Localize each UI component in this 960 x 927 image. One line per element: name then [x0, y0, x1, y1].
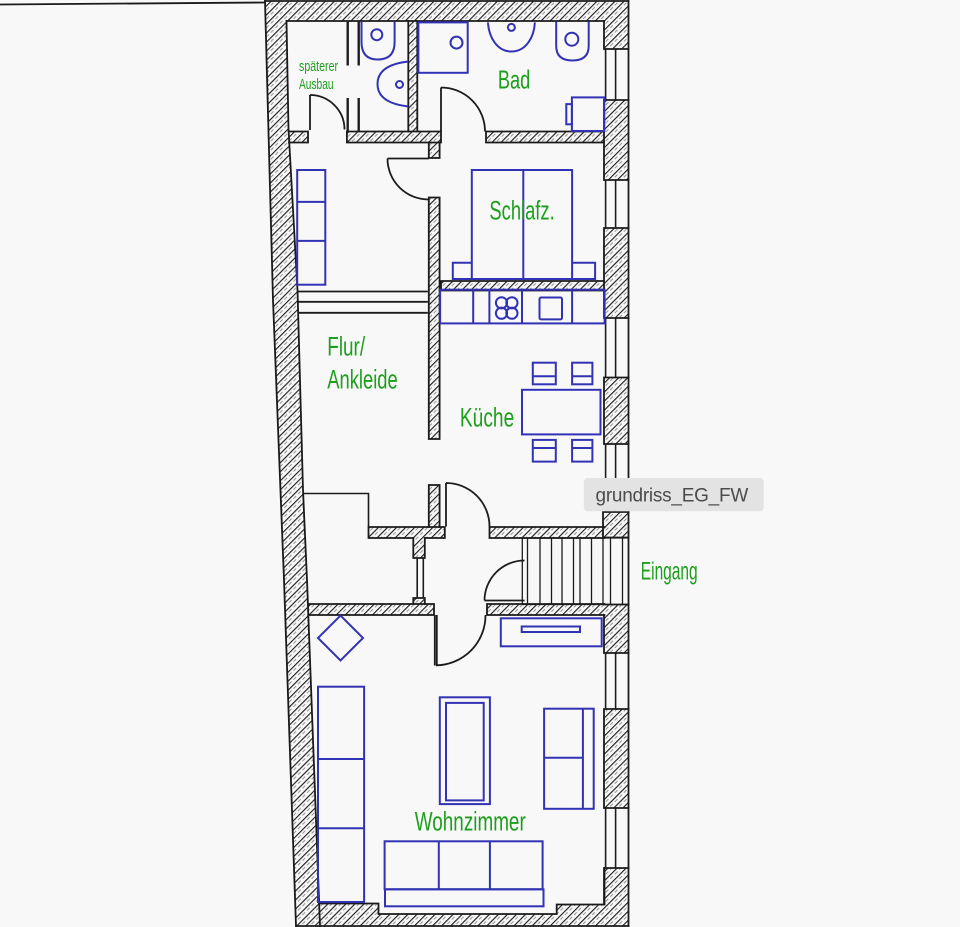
svg-text:Ankleide: Ankleide	[327, 364, 397, 394]
svg-text:Schlafz.: Schlafz.	[489, 195, 554, 225]
svg-text:Eingang: Eingang	[641, 558, 698, 586]
svg-text:Bad: Bad	[498, 65, 530, 94]
svg-text:späterer: späterer	[299, 57, 339, 74]
svg-text:Ausbau: Ausbau	[299, 75, 334, 93]
svg-text:Flur/: Flur/	[327, 331, 365, 361]
svg-text:Küche: Küche	[460, 402, 514, 432]
svg-text:grundriss_EG_FW: grundriss_EG_FW	[596, 486, 749, 507]
svg-text:Wohnzimmer: Wohnzimmer	[415, 806, 526, 836]
